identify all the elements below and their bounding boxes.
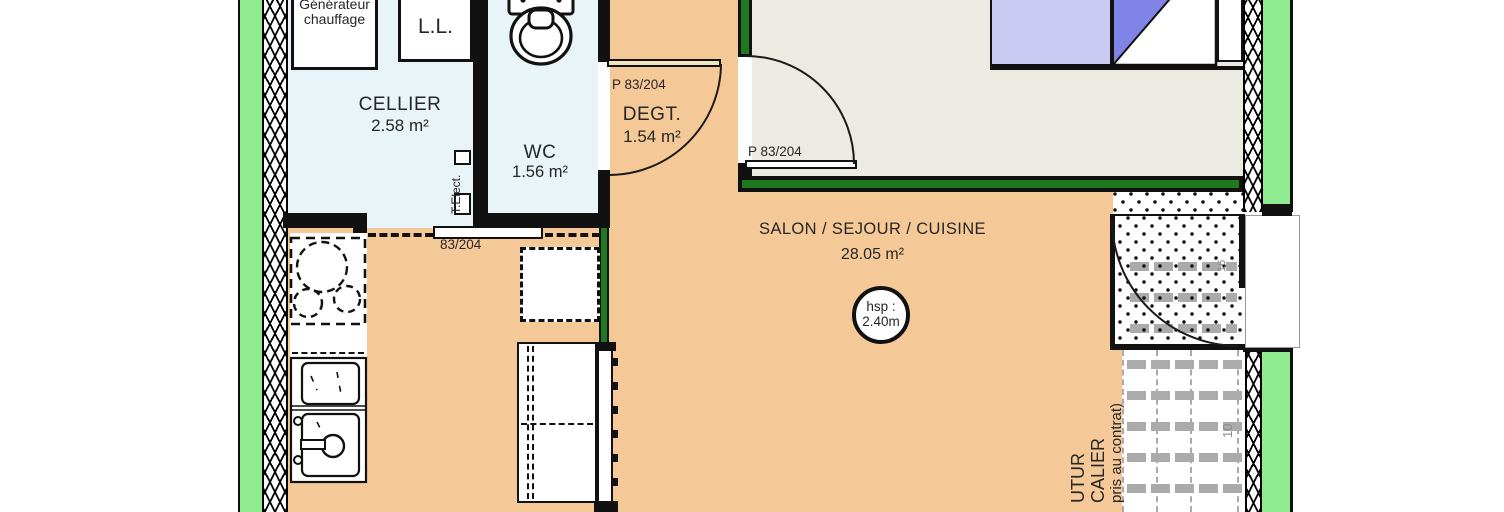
ceiling-height-line1: hsp : xyxy=(856,300,906,315)
door-label-cellier: 83/204 xyxy=(440,237,481,252)
room-area-salon: 28.05 m² xyxy=(690,246,1055,264)
stair-note-line1: UTUR xyxy=(1068,453,1089,503)
stair-dimension-lower: 10 xyxy=(1220,424,1235,438)
ceiling-height-badge: hsp : 2.40m xyxy=(852,286,910,344)
floorplan-canvas: Générateur chauffage L.L. T.Elect. xyxy=(0,0,1504,512)
ceiling-height-line2: 2.40m xyxy=(856,315,906,330)
room-area-degt: 1.54 m² xyxy=(592,127,712,147)
room-name-degt: DEGT. xyxy=(592,104,712,126)
room-name-wc: WC xyxy=(480,142,600,164)
room-name-salon: SALON / SEJOUR / CUISINE xyxy=(690,220,1055,239)
stair-dimension-upper: 16 xyxy=(1216,260,1228,272)
door-label-degt: P 83/204 xyxy=(612,77,666,92)
room-name-cellier: CELLIER xyxy=(320,94,480,116)
stair-note-line2: CALIER xyxy=(1088,438,1109,503)
stair-note-line3: pris au contrat) xyxy=(1108,403,1125,503)
room-area-wc: 1.56 m² xyxy=(480,163,600,182)
door-label-bedroom: P 83/204 xyxy=(748,144,802,159)
room-area-cellier: 2.58 m² xyxy=(320,116,480,136)
